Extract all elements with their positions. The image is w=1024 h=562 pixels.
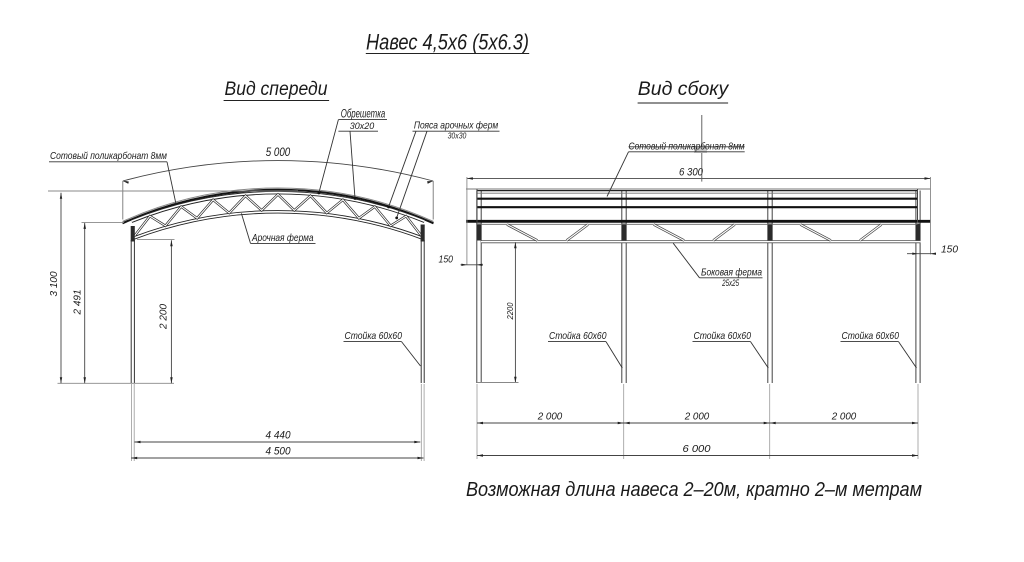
svg-text:Навес 4,5х6 (5х6.3): Навес 4,5х6 (5х6.3) [366,30,529,55]
svg-text:Сотовый поликарбонат 8мм: Сотовый поликарбонат 8мм [629,140,745,152]
svg-text:2 000: 2 000 [684,411,710,423]
svg-text:2 200: 2 200 [159,304,170,330]
svg-text:5 000: 5 000 [266,147,291,159]
svg-text:Стойка 60х60: Стойка 60х60 [345,330,403,342]
svg-text:6 300: 6 300 [679,167,704,179]
svg-text:150: 150 [439,254,454,266]
svg-text:Вид спереди: Вид спереди [225,79,328,100]
svg-text:4 500: 4 500 [266,446,292,458]
svg-text:150: 150 [941,244,958,256]
svg-text:2 000: 2 000 [831,411,857,423]
svg-text:Сотовый поликарбонат 8мм: Сотовый поликарбонат 8мм [50,150,167,162]
svg-text:Боковая ферма: Боковая ферма [701,266,762,278]
svg-text:6 000: 6 000 [683,443,711,455]
svg-text:2 491: 2 491 [73,290,84,316]
svg-text:Пояса арочных ферм: Пояса арочных ферм [414,120,498,132]
svg-text:30х20: 30х20 [350,121,375,132]
svg-text:Арочная ферма: Арочная ферма [251,232,313,244]
svg-text:Стойка 60х60: Стойка 60х60 [842,330,900,342]
svg-text:2 000: 2 000 [537,411,563,423]
svg-text:25х25: 25х25 [721,278,739,288]
svg-text:4 440: 4 440 [266,430,292,442]
svg-text:30х30: 30х30 [448,132,467,141]
svg-text:Стойка 60х60: Стойка 60х60 [694,330,752,342]
svg-text:Возможная длина навеса 2–20: Возможная длина навеса 2–20м, кратно 2–м… [466,479,922,501]
svg-text:Стойка 60х60: Стойка 60х60 [549,330,607,342]
svg-text:Обрешетка: Обрешетка [341,107,386,121]
svg-text:2200: 2200 [505,302,515,320]
svg-text:3 100: 3 100 [49,271,60,296]
svg-text:Вид сбоку: Вид сбоку [638,79,730,100]
